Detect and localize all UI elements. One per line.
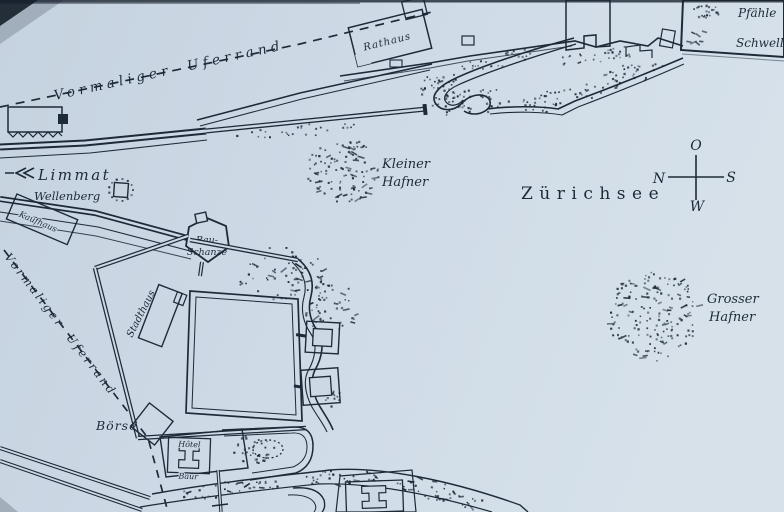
compass-bottom: W	[690, 199, 706, 215]
historical-map-scan: Vormaliger Uferrand Vormaliger Uferrand …	[0, 0, 784, 512]
grosser-hafner-label-1: Grosser	[707, 292, 759, 307]
bauschanze-tower	[195, 212, 208, 223]
legend-sleepers-label: Schwellen	[736, 36, 784, 50]
quay-block-annex	[58, 114, 68, 124]
wellenberg-label: Wellenberg	[34, 189, 100, 203]
legend-piles-label: Pfähle	[737, 6, 776, 20]
limmat-label: Limmat	[37, 166, 111, 184]
compass-top: O	[690, 138, 702, 154]
bauschanze-label-2: Schanze	[187, 247, 228, 258]
grosser-hafner-label-2: Hafner	[708, 310, 756, 325]
kleiner-hafner-label-1: Kleiner	[381, 157, 431, 172]
boerse-label: Börse	[95, 418, 138, 433]
lake-label: Zürichsee	[521, 184, 665, 204]
compass-right: S	[726, 170, 736, 186]
kleiner-hafner-label-2: Hafner	[381, 175, 429, 190]
hotel-baur-label-2: Baur	[177, 472, 199, 482]
scan-edge-top	[0, 0, 784, 3]
hotel-baur-label-1: Hôtel	[177, 440, 201, 450]
map-canvas: Vormaliger Uferrand Vormaliger Uferrand …	[0, 0, 784, 512]
